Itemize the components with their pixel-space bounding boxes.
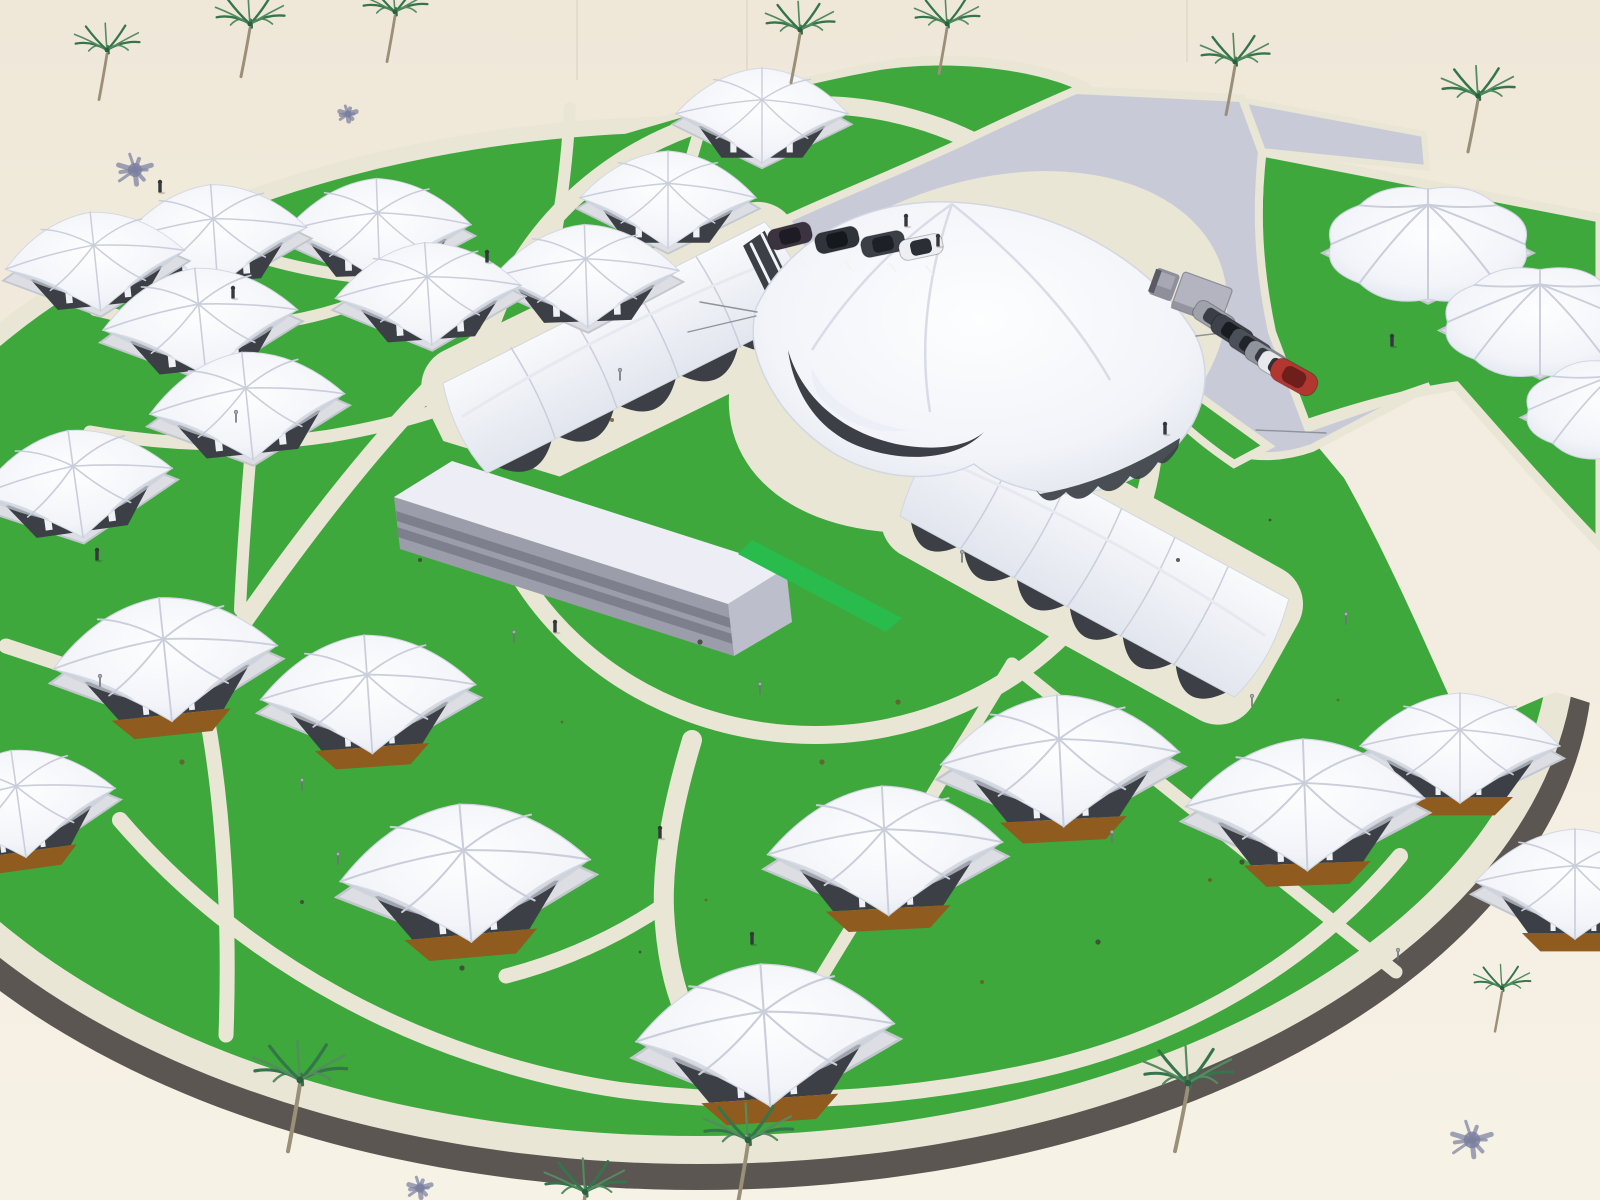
dirt-speck xyxy=(179,759,184,764)
dirt-speck xyxy=(705,899,708,902)
dirt-speck xyxy=(895,699,900,704)
site-plan-svg xyxy=(0,0,1600,1200)
dirt-speck xyxy=(1095,939,1100,944)
dirt-speck xyxy=(1337,699,1340,702)
dirt-speck xyxy=(418,558,422,562)
dirt-speck xyxy=(1269,519,1272,522)
dirt-speck xyxy=(980,980,984,984)
dirt-speck xyxy=(1208,878,1212,882)
dirt-speck xyxy=(459,965,464,970)
dirt-speck xyxy=(300,900,304,904)
dirt-speck xyxy=(639,951,642,954)
dirt-speck xyxy=(561,721,564,724)
dirt-speck xyxy=(610,418,614,422)
dirt-speck xyxy=(1176,558,1180,562)
dirt-speck xyxy=(819,759,824,764)
dirt-speck xyxy=(1239,859,1244,864)
aerial-site-render xyxy=(0,0,1600,1200)
dirt-speck xyxy=(697,639,702,644)
